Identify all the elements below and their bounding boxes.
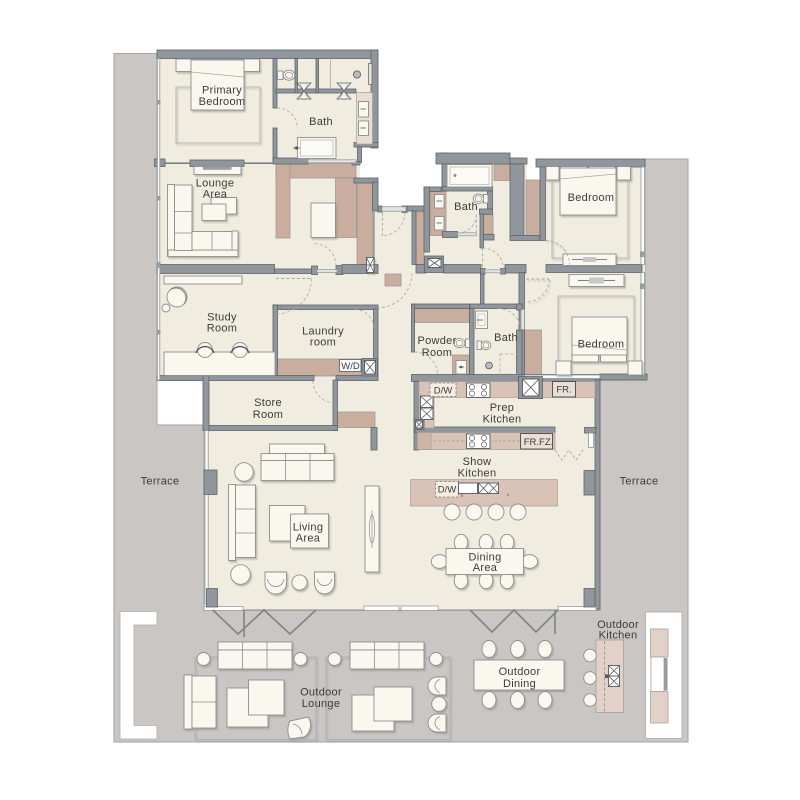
svg-text:Kitchen: Kitchen (599, 630, 638, 642)
svg-text:Area: Area (203, 189, 228, 201)
svg-text:Prep: Prep (490, 402, 514, 414)
svg-text:Area: Area (473, 562, 498, 574)
svg-text:room: room (310, 337, 336, 349)
svg-text:Lounge: Lounge (302, 698, 341, 710)
svg-text:Room: Room (207, 323, 238, 335)
svg-text:FR.FZ.: FR.FZ. (524, 437, 554, 448)
svg-text:W/D: W/D (341, 361, 360, 372)
svg-text:Bedroom: Bedroom (568, 192, 615, 204)
svg-text:Outdoor: Outdoor (499, 666, 541, 678)
svg-text:Bath: Bath (454, 201, 478, 213)
svg-text:FR.: FR. (556, 385, 571, 396)
svg-text:Outdoor: Outdoor (300, 687, 342, 699)
svg-text:Primary: Primary (202, 85, 242, 97)
svg-text:Bath: Bath (309, 116, 333, 128)
svg-text:Dining: Dining (503, 678, 536, 690)
svg-text:Bedroom: Bedroom (578, 339, 625, 351)
svg-text:Bath: Bath (494, 332, 518, 344)
svg-text:Kitchen: Kitchen (458, 468, 497, 480)
svg-text:Terrace: Terrace (620, 476, 659, 488)
svg-text:Terrace: Terrace (141, 476, 180, 488)
svg-text:Area: Area (296, 533, 321, 545)
svg-text:Bedroom: Bedroom (199, 96, 246, 108)
svg-text:D/W: D/W (438, 485, 457, 496)
svg-text:Kitchen: Kitchen (483, 414, 522, 426)
svg-text:Room: Room (422, 347, 453, 359)
svg-text:Room: Room (253, 409, 284, 421)
svg-text:D/W: D/W (434, 386, 453, 397)
svg-text:Show: Show (463, 456, 492, 468)
svg-text:Store: Store (254, 397, 282, 409)
svg-text:Powder: Powder (417, 335, 456, 347)
